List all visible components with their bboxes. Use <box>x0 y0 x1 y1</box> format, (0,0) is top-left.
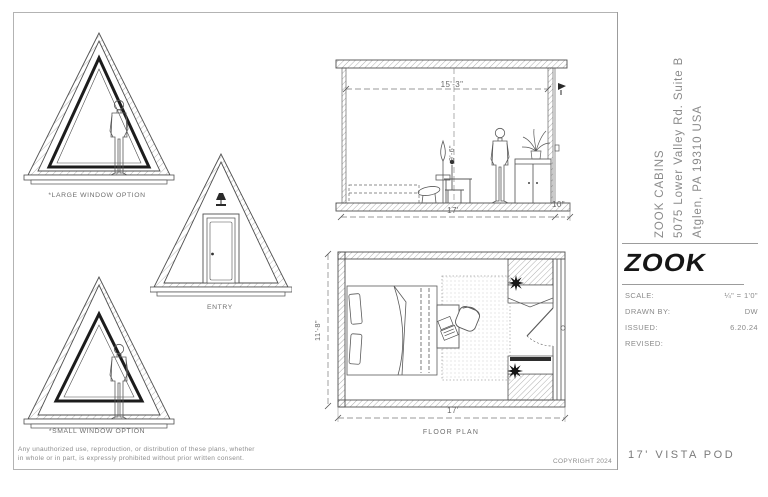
top-wall <box>338 252 565 259</box>
door-knob-plan <box>561 326 565 330</box>
door-swing <box>527 308 553 346</box>
entry-label: ENTRY <box>185 304 255 311</box>
issued-label: ISSUED: <box>625 323 658 332</box>
title-block-divider <box>617 12 618 470</box>
scale-value: ¼" = 1'0" <box>724 291 758 300</box>
entry-light-icon <box>216 193 226 206</box>
floor-plan-label: FLOOR PLAN <box>411 429 491 436</box>
left-wall <box>338 252 345 407</box>
address-line-2: Atglen, PA 19310 USA <box>689 57 708 238</box>
front-glazing-wall <box>553 259 565 400</box>
zook-logo: ZOOK <box>622 249 709 278</box>
floor-plan-width-dim: 17' <box>438 406 468 415</box>
drawing-title: 17' VISTA POD <box>628 449 735 461</box>
disclaimer-line-1: Any unauthorized use, reproduction, or d… <box>18 446 255 453</box>
drawn-by-value: DW <box>745 307 758 316</box>
person-figure <box>491 128 509 203</box>
entry-door <box>203 214 239 283</box>
door-knob <box>211 253 214 256</box>
large-window-option-label: *LARGE WINDOW OPTION <box>27 192 167 199</box>
plant-icon <box>508 275 524 291</box>
small-window-triangle <box>56 314 142 401</box>
section-width-dim: 15'-3" <box>428 80 476 89</box>
floor-plan-drawing <box>322 248 570 426</box>
drawn-by-label: DRAWN BY: <box>625 307 670 316</box>
company-name: ZOOK CABINS <box>651 57 670 238</box>
revised-label: REVISED: <box>625 339 663 348</box>
potted-plant-section <box>522 129 550 159</box>
small-window-option-label: *SMALL WINDOW OPTION <box>27 428 167 435</box>
plan-sheet: *LARGE WINDOW OPTION ENTRY <box>0 0 768 497</box>
aframe-shell <box>28 33 170 175</box>
bed-plan <box>347 286 437 375</box>
drawn-by-row: DRAWN BY: DW <box>625 307 758 316</box>
issued-value: 6.20.24 <box>730 323 758 332</box>
bench-plan <box>510 357 551 361</box>
door-handle-section <box>555 145 559 151</box>
disclaimer-line-2: in whole or in part, is expressly prohib… <box>18 455 244 462</box>
revised-row: REVISED: <box>625 339 758 348</box>
left-wall-section <box>342 68 346 203</box>
section-base-dim: 17' <box>438 206 468 215</box>
section-height-dim: 9'-6" <box>449 145 456 161</box>
title-block-rule <box>622 284 744 285</box>
foundation <box>31 180 167 184</box>
section-overhang-dim: 10" <box>552 200 565 209</box>
bed-section <box>349 185 419 203</box>
toilet-section <box>417 185 440 203</box>
issued-row: ISSUED: 6.20.24 <box>625 323 758 332</box>
scale-label: SCALE: <box>625 291 654 300</box>
plant-icon <box>507 363 523 379</box>
copyright-notice: COPYRIGHT 2024 <box>500 458 612 465</box>
pillow <box>349 334 362 365</box>
person-figure <box>110 100 128 175</box>
floor-plan-depth-dim: 11'-8" <box>313 320 322 341</box>
company-address-block: ZOOK CABINS 5075 Lower Valley Rd. Suite … <box>651 57 708 238</box>
aframe-shell <box>28 277 170 419</box>
exterior-sconce-icon <box>558 83 566 95</box>
small-window-elevation-drawing <box>22 270 177 440</box>
roof-section <box>336 60 567 68</box>
title-block-rule <box>622 243 758 244</box>
cabinet-section <box>515 159 551 203</box>
base-plate <box>24 419 174 424</box>
desk-and-chair-section <box>444 160 472 203</box>
pillow <box>349 294 363 325</box>
address-line-1: 5075 Lower Valley Rd. Suite B <box>670 57 689 238</box>
scale-row: SCALE: ¼" = 1'0" <box>625 291 758 300</box>
